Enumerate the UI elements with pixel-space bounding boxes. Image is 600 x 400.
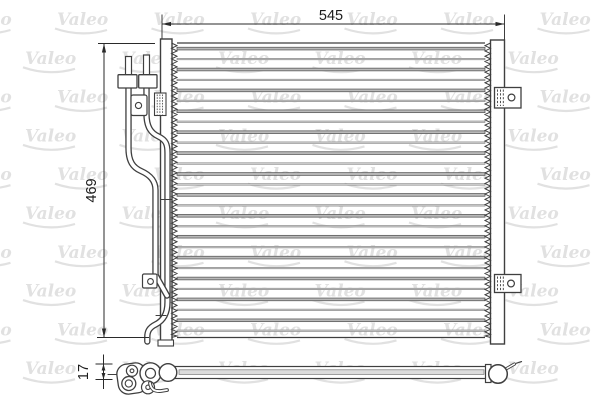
watermark-text: Valeo — [25, 126, 76, 146]
pipe-bracket-hole-upper — [135, 102, 141, 108]
height-label: 469 — [84, 178, 100, 202]
core-tube — [177, 298, 485, 301]
core-tube — [177, 214, 485, 217]
watermark-text: Valeo — [508, 359, 559, 379]
core-tube — [177, 277, 485, 280]
drawing-canvas: ValeoValeoValeoValeoValeoValeoValeoValeo… — [0, 0, 600, 400]
pipe-stub-left — [126, 57, 132, 76]
union-boss-outer — [140, 363, 161, 384]
watermark-text: Valeo — [540, 165, 591, 185]
watermark-text: Valeo — [347, 243, 398, 263]
mounting-bracket-top — [495, 88, 522, 109]
core-tube — [177, 205, 485, 207]
watermark-text: Valeo — [25, 49, 76, 69]
watermark-text: Valeo — [540, 320, 591, 340]
watermark-text: Valeo — [0, 88, 12, 108]
condenser-technical-drawing: ValeoValeoValeoValeoValeoValeoValeoValeo… — [0, 0, 600, 400]
core-tube — [177, 226, 485, 228]
watermark-text: Valeo — [57, 10, 108, 30]
core-tube — [177, 173, 485, 176]
pipe-stub-right — [144, 55, 150, 76]
core-tube — [177, 110, 485, 113]
core-tube — [177, 89, 485, 92]
bracket-bottom-hole — [508, 280, 515, 287]
watermark-text: Valeo — [250, 243, 301, 263]
watermark-text: Valeo — [347, 10, 398, 30]
watermark-text: Valeo — [540, 243, 591, 263]
core-tube — [177, 330, 485, 332]
union-block-left — [118, 75, 137, 88]
core-tube — [177, 152, 485, 155]
core-tube — [177, 288, 485, 290]
depth-label: 17 — [76, 364, 92, 380]
core-tube — [177, 142, 485, 144]
core-tube — [177, 246, 485, 248]
right-tank — [491, 40, 505, 344]
watermark-text: Valeo — [57, 165, 108, 185]
core-tube — [177, 309, 485, 311]
union-block-right — [139, 75, 157, 88]
watermark-text: Valeo — [250, 10, 301, 30]
watermark-text: Valeo — [0, 243, 12, 263]
core-tube — [177, 184, 485, 186]
watermark-text: Valeo — [508, 126, 559, 146]
width-label: 545 — [319, 8, 343, 24]
watermark-text: Valeo — [443, 10, 494, 30]
watermark-text: Valeo — [25, 204, 76, 224]
watermark-text: Valeo — [508, 49, 559, 69]
core-tube — [177, 267, 485, 269]
watermark-text: Valeo — [25, 282, 76, 302]
watermark-text: Valeo — [25, 359, 76, 379]
left-tank-bottom-cap — [158, 340, 174, 346]
core-tube — [177, 256, 485, 259]
mounting-bracket-bottom — [495, 275, 522, 293]
core-tube — [177, 47, 485, 50]
core-tube — [177, 319, 485, 322]
watermark-text: Valeo — [0, 320, 12, 340]
side-mount-circle — [489, 365, 508, 384]
core-tube — [177, 68, 485, 71]
fitting-bolt-outer — [126, 365, 137, 376]
core-tube — [177, 131, 485, 134]
watermark-text: Valeo — [154, 10, 205, 30]
core-tube — [177, 79, 485, 81]
watermark-text: Valeo — [411, 204, 462, 224]
watermark-text: Valeo — [218, 204, 269, 224]
fitting-port-outer — [122, 377, 136, 391]
core-tube — [177, 121, 485, 123]
core-side-inner-band — [179, 370, 484, 375]
core-tube — [177, 100, 485, 102]
bracket-top-hole — [508, 94, 515, 101]
pipe-bracket-hole-lower — [148, 279, 154, 285]
core-tube — [177, 58, 485, 60]
watermark-text: Valeo — [57, 88, 108, 108]
watermark-text: Valeo — [540, 10, 591, 30]
core-tube — [177, 235, 485, 238]
receiver-end-circle — [159, 364, 177, 382]
core-tube — [177, 194, 485, 197]
watermark-text: Valeo — [508, 204, 559, 224]
watermark-text: Valeo — [540, 88, 591, 108]
watermark-text: Valeo — [0, 10, 12, 30]
watermark-text: Valeo — [57, 243, 108, 263]
core-tube — [177, 163, 485, 165]
watermark-text: Valeo — [0, 165, 12, 185]
watermark-text: Valeo — [315, 204, 366, 224]
